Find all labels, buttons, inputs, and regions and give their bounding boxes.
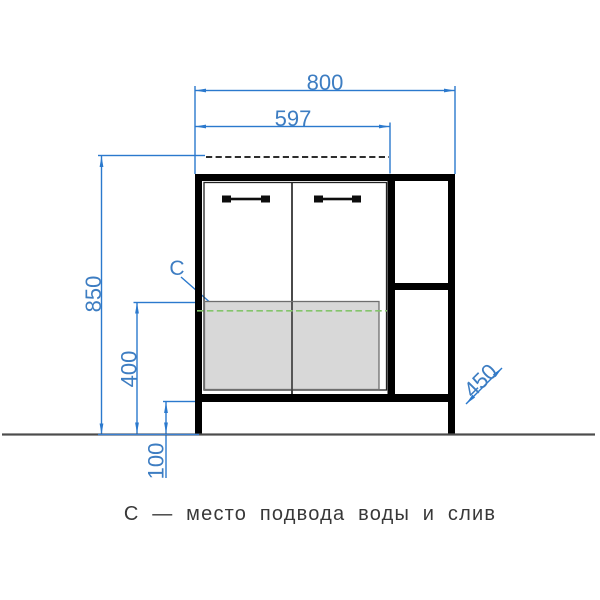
svg-text:597: 597 (275, 106, 312, 131)
svg-text:C: C (169, 257, 184, 280)
svg-text:800: 800 (307, 70, 344, 95)
svg-text:100: 100 (143, 443, 168, 480)
svg-text:850: 850 (81, 276, 106, 313)
svg-text:400: 400 (116, 351, 141, 388)
svg-text:450: 450 (459, 359, 503, 403)
